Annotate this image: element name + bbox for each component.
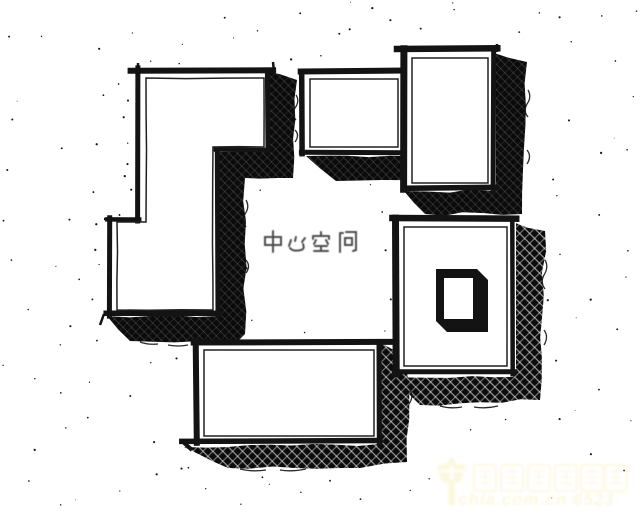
svg-text:chla.com.cn 6523: chla.com.cn 6523 [458, 490, 615, 509]
